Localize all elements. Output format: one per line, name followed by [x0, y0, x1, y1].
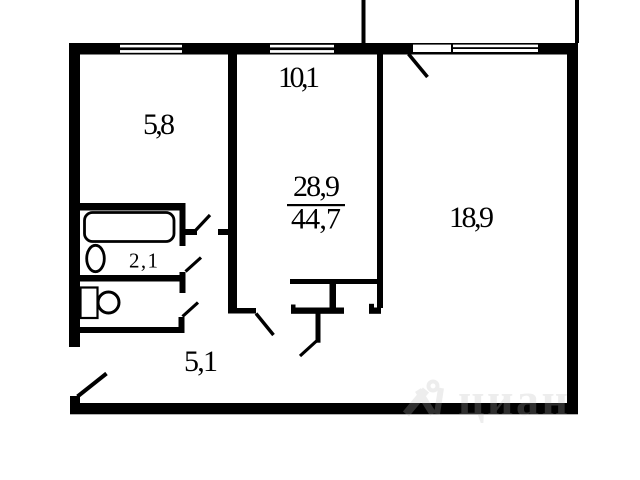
svg-text:5,1: 5,1 [184, 345, 218, 378]
svg-text:44,7: 44,7 [291, 203, 341, 236]
svg-text:28,9: 28,9 [293, 170, 340, 203]
svg-text:2,1: 2,1 [129, 249, 158, 273]
svg-text:18,9: 18,9 [449, 201, 494, 234]
svg-text:циан: циан [458, 374, 568, 425]
svg-text:10,1: 10,1 [278, 61, 320, 94]
svg-text:5,8: 5,8 [143, 108, 175, 141]
